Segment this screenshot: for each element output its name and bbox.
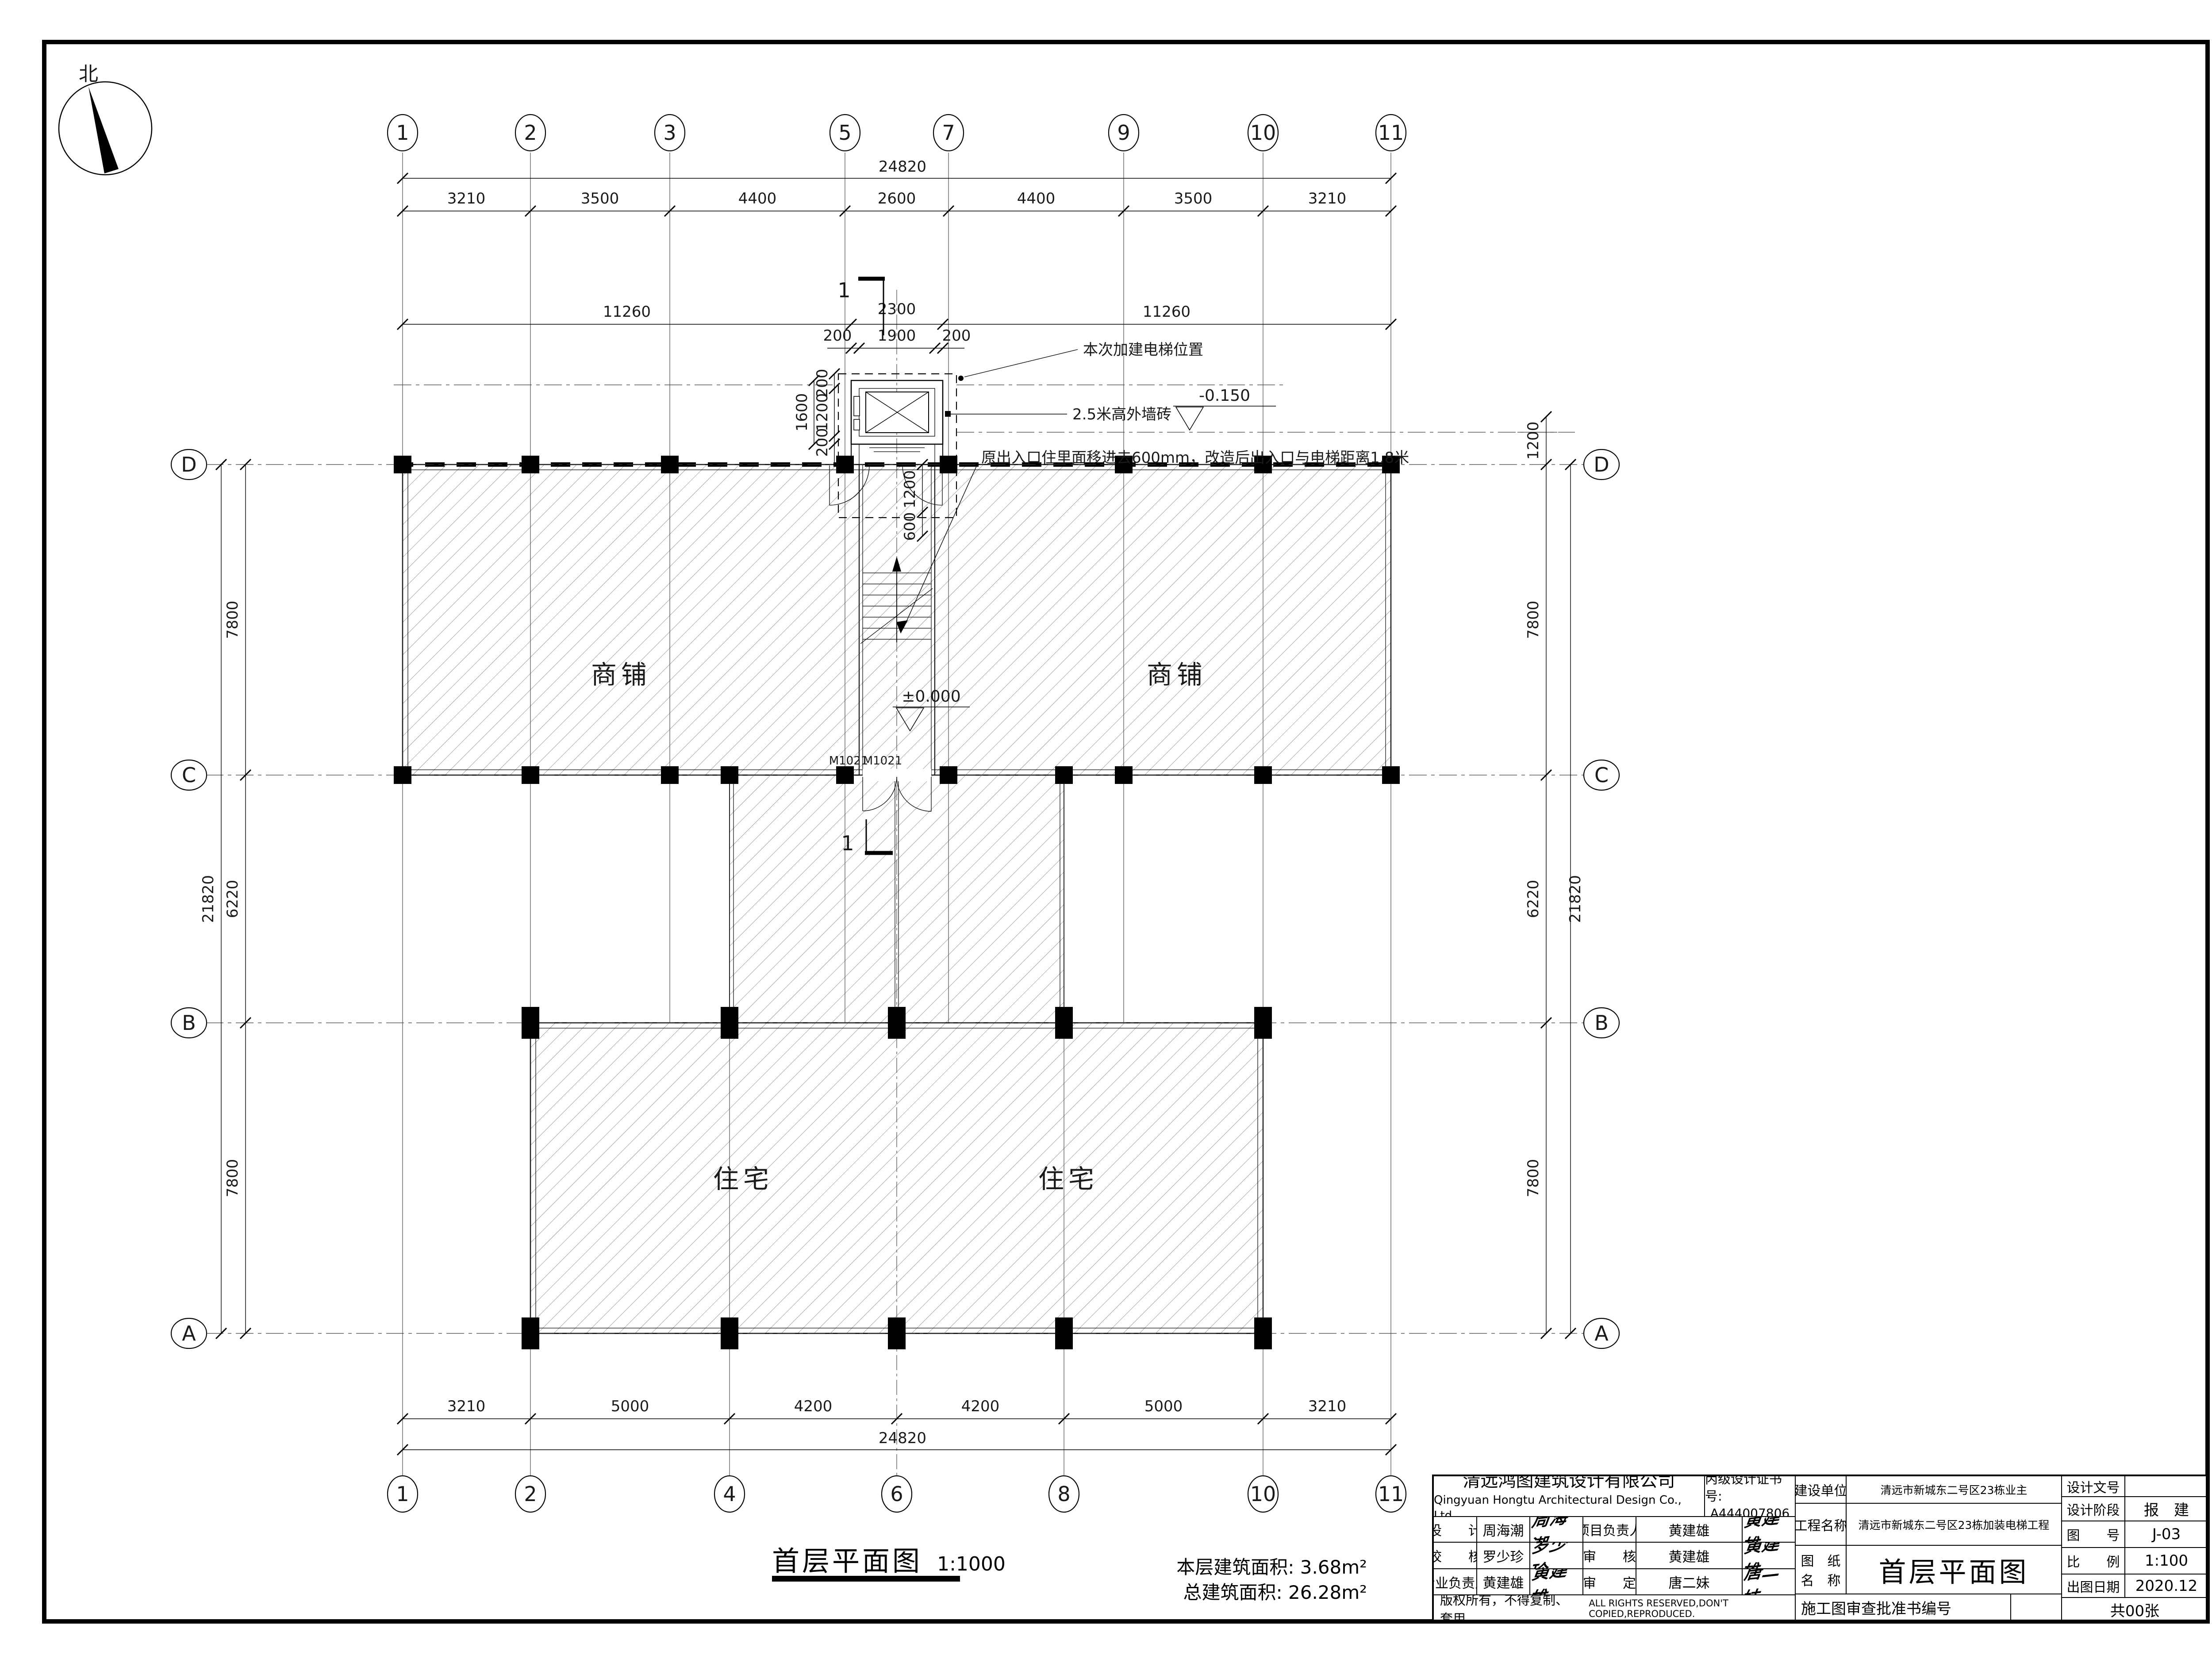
dim-right-2: 6220: [1525, 880, 1542, 918]
scale-label: 比 例: [2062, 1548, 2125, 1575]
svg-text:1: 1: [396, 121, 409, 145]
room-label-shop-right: 商铺: [1147, 660, 1207, 690]
company-name-cn: 清远鸿图建筑设计有限公司: [1463, 1476, 1675, 1493]
project-value: 清远市新城东二号区23栋加装电梯工程: [1847, 1504, 2062, 1546]
drawing-name-label: 图 纸 名 称: [1796, 1546, 1847, 1594]
dim-bot-4: 4200: [961, 1398, 1000, 1415]
dim-top-3: 4400: [738, 190, 777, 207]
north-compass: 北: [59, 63, 152, 175]
svg-text:B: B: [182, 1011, 196, 1035]
svg-text:8: 8: [1057, 1482, 1070, 1506]
role-label-discipline-lead: 专业负责人: [1434, 1569, 1477, 1595]
scale-value: 1:100: [2125, 1548, 2208, 1575]
svg-text:±0.000: ±0.000: [902, 687, 960, 706]
design-stage-label: 设计阶段: [2062, 1497, 2125, 1521]
dim-left-2: 6220: [224, 880, 242, 918]
role-label-check: 校 核: [1434, 1543, 1477, 1569]
dim-mid-left: 11260: [603, 303, 651, 321]
copyright-cell: 版权所有，不得复制、套用。 ALL RIGHTS RESERVED,DON'T …: [1434, 1595, 1796, 1621]
company-cell: 清远鸿图建筑设计有限公司 Qingyuan Hongtu Architectur…: [1434, 1476, 1705, 1517]
design-stage-value: 报 建: [2125, 1497, 2208, 1521]
issue-date-label: 出图日期: [2062, 1575, 2125, 1598]
designer-signature: 周海潮: [1530, 1517, 1583, 1543]
svg-text:2: 2: [524, 1482, 537, 1506]
doc-number-label: 设计文号: [2062, 1476, 2125, 1497]
plan-title-underline: [772, 1576, 960, 1582]
dim-elev-l1200: 1200: [814, 393, 831, 432]
checker-signature: 罗少珍: [1530, 1543, 1583, 1569]
svg-text:9: 9: [1117, 121, 1130, 145]
reviewer-name: 黄建雄: [1636, 1543, 1743, 1569]
svg-text:D: D: [1594, 453, 1609, 476]
svg-text:A: A: [182, 1321, 196, 1345]
svg-text:D: D: [181, 453, 196, 476]
dim-top-7: 3210: [1308, 190, 1347, 207]
svg-text:5: 5: [838, 121, 851, 145]
dim-elev-200a: 200: [823, 327, 852, 345]
title-block: 清远鸿图建筑设计有限公司 Qingyuan Hongtu Architectur…: [1432, 1475, 2208, 1621]
svg-text:C: C: [1594, 763, 1609, 787]
issue-date-value: 2020.12: [2125, 1575, 2208, 1598]
annotation-exterior-wall: 2.5米高外墙砖: [945, 406, 1171, 423]
compass-needle-icon: [88, 87, 119, 173]
project-lead-signature: 黄建雄: [1743, 1517, 1796, 1543]
project-lead-name: 黄建雄: [1636, 1517, 1743, 1543]
svg-text:10: 10: [1250, 121, 1276, 145]
approval-number-label: 施工图审查批准书编号: [1796, 1594, 2011, 1621]
project-label: 工程名称: [1796, 1504, 1847, 1546]
svg-text:7: 7: [942, 121, 955, 145]
svg-text:11: 11: [1378, 121, 1404, 145]
svg-text:4: 4: [723, 1482, 736, 1506]
area-summary: 本层建筑面积: 3.68m² 总建筑面积: 26.28m²: [1013, 1555, 1367, 1605]
doc-number-value: [2125, 1476, 2208, 1497]
client-label: 建设单位: [1796, 1476, 1847, 1504]
role-label-project-lead: 项目负责人: [1583, 1517, 1636, 1543]
client-value: 清远市新城东二号区23栋业主: [1847, 1476, 2062, 1504]
door-label-1: M1021: [829, 754, 868, 768]
dim-top-6: 3500: [1174, 190, 1213, 207]
svg-text:1: 1: [841, 831, 854, 855]
company-name-en: Qingyuan Hongtu Architectural Design Co.…: [1434, 1493, 1704, 1517]
dim-elev-1600: 1600: [793, 393, 811, 432]
dim-mid-right: 11260: [1143, 303, 1190, 321]
room-label-residence-left: 住宅: [713, 1164, 773, 1194]
svg-text:原出入口住里面移进去600mm，改造后出入口与电梯距离1.8: 原出入口住里面移进去600mm，改造后出入口与电梯距离1.8米: [981, 449, 1409, 467]
drawing-sheet: { "sheet": { "compass": "北", "plan_title…: [0, 0, 2212, 1659]
drawing-name-value: 首层平面图: [1847, 1546, 2062, 1594]
room-label-residence-right: 住宅: [1038, 1164, 1098, 1194]
svg-text:B: B: [1594, 1011, 1609, 1035]
dim-left-1: 7800: [224, 601, 242, 639]
dim-top-5: 4400: [1017, 190, 1056, 207]
dim-left-total: 21820: [200, 875, 217, 923]
role-label-design: 设 计: [1434, 1517, 1477, 1543]
svg-text:1: 1: [396, 1482, 409, 1506]
role-label-approve: 审 定: [1583, 1569, 1636, 1595]
approver-name: 唐二妹: [1636, 1569, 1743, 1595]
svg-text:2.5米高外墙砖: 2.5米高外墙砖: [1072, 406, 1171, 423]
approval-number-value: [2011, 1594, 2062, 1621]
svg-text:10: 10: [1250, 1482, 1276, 1506]
copyright-en: ALL RIGHTS RESERVED,DON'T COPIED,REPRODU…: [1589, 1598, 1795, 1619]
discipline-lead-signature: 黄建雄: [1530, 1569, 1583, 1595]
certificate-cell: 丙级设计证书号: A444007806: [1705, 1476, 1796, 1517]
dim-elev-l200a: 200: [814, 369, 831, 398]
dim-left-3: 7800: [224, 1159, 242, 1198]
designer-name: 周海潮: [1477, 1517, 1530, 1543]
room-label-shop-left: 商铺: [591, 660, 651, 690]
plan-title: 首层平面图 1:1000: [772, 1539, 1006, 1578]
reviewer-signature: 黄建雄: [1743, 1543, 1796, 1569]
dim-top-4: 2600: [878, 190, 916, 207]
dim-top-1: 3210: [447, 190, 486, 207]
svg-text:2: 2: [524, 121, 537, 145]
dim-elev-200b: 200: [942, 327, 971, 345]
checker-name: 罗少珍: [1477, 1543, 1530, 1569]
dim-bot-5: 5000: [1144, 1398, 1183, 1415]
elevator-car-icon: [866, 392, 929, 433]
dim-right-1200: 1200: [1525, 422, 1542, 460]
svg-text:3: 3: [663, 121, 676, 145]
svg-text:6: 6: [890, 1482, 903, 1506]
dim-entry-600: 600: [901, 512, 919, 541]
level-mark-minus: -0.150: [1173, 387, 1276, 430]
discipline-lead-name: 黄建雄: [1477, 1569, 1530, 1595]
dim-right-1: 7800: [1525, 601, 1542, 639]
dim-bot-6: 3210: [1308, 1398, 1347, 1415]
total-sheets: 共00张: [2062, 1598, 2208, 1621]
approver-signature: 唐二妹: [1743, 1569, 1796, 1595]
compass-label: 北: [79, 63, 98, 85]
copyright-cn: 版权所有，不得复制、套用。: [1440, 1595, 1578, 1621]
door-label-2: M1021: [863, 754, 902, 768]
sheet-number-value: J-03: [2125, 1521, 2208, 1548]
svg-text:-0.150: -0.150: [1199, 387, 1250, 405]
dim-right-total: 21820: [1567, 875, 1584, 923]
certificate-number: A444007806: [1710, 1505, 1790, 1517]
dim-bot-3: 4200: [794, 1398, 833, 1415]
certificate-label: 丙级设计证书号:: [1705, 1476, 1795, 1505]
annotation-elevator-position: 本次加建电梯位置: [958, 341, 1203, 381]
sheet-number-label: 图 号: [2062, 1521, 2125, 1548]
dim-top-2: 3500: [581, 190, 619, 207]
area-line-2: 总建筑面积: 26.28m²: [1013, 1580, 1367, 1605]
svg-text:本次加建电梯位置: 本次加建电梯位置: [1083, 341, 1203, 359]
svg-text:A: A: [1594, 1321, 1609, 1345]
dim-bot-1: 3210: [447, 1398, 486, 1415]
dim-bot-2: 5000: [611, 1398, 649, 1415]
sheet-frame: [44, 42, 2208, 1621]
role-label-review: 审 核: [1583, 1543, 1636, 1569]
plan-title-text: 首层平面图: [772, 1539, 922, 1578]
area-line-1: 本层建筑面积: 3.68m²: [1013, 1555, 1367, 1580]
dim-elev-l200b: 200: [814, 428, 831, 457]
svg-text:1: 1: [837, 278, 850, 302]
floor-plan-canvas: 北: [0, 0, 2212, 1659]
dim-bot-total: 24820: [879, 1429, 926, 1447]
dim-top-total: 24820: [879, 158, 926, 176]
svg-text:11: 11: [1378, 1482, 1404, 1506]
plan-title-scale: 1:1000: [937, 1553, 1006, 1575]
dim-right-3: 7800: [1525, 1159, 1542, 1198]
svg-text:C: C: [182, 763, 196, 787]
